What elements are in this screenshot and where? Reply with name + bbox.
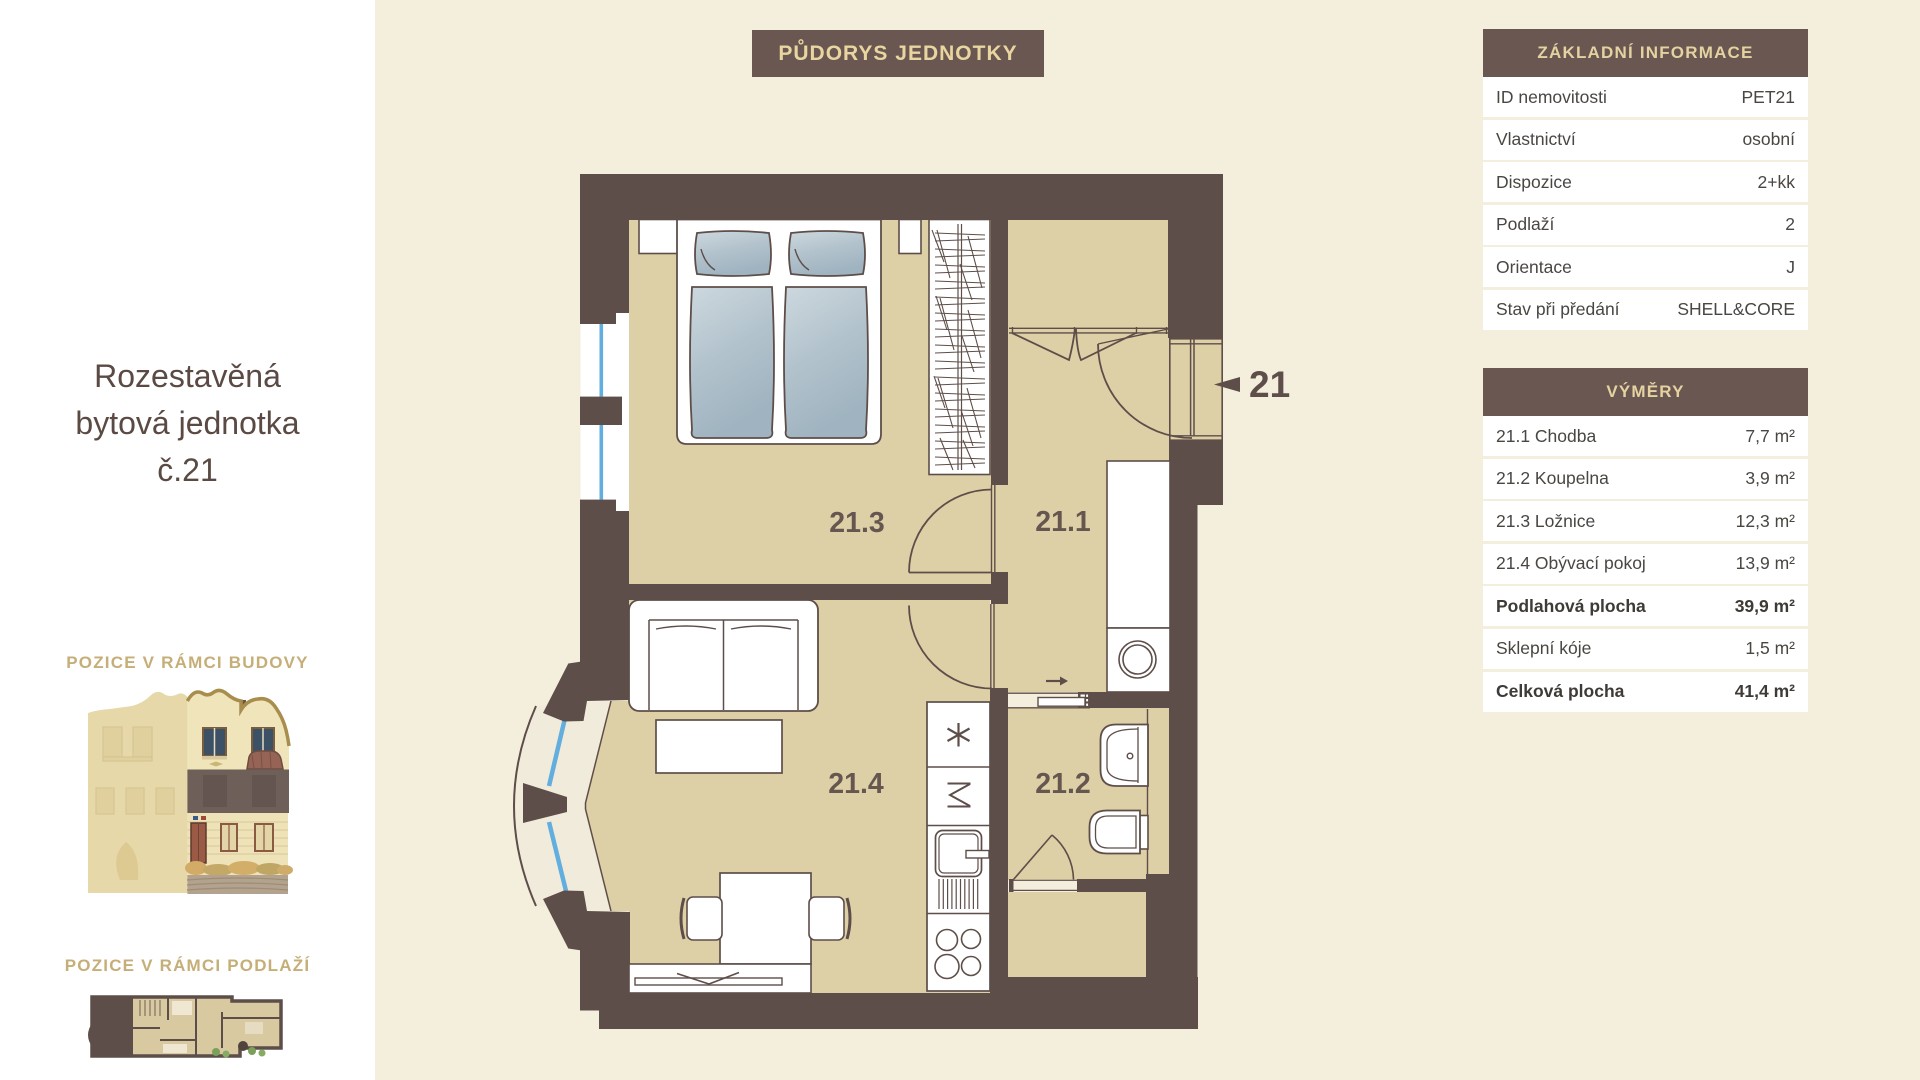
svg-text:21: 21 [1249,364,1290,405]
svg-text:21.1: 21.1 [1035,506,1091,538]
svg-text:21.2: 21.2 [1035,768,1090,800]
svg-text:21.3: 21.3 [829,507,884,539]
svg-text:21.4: 21.4 [828,768,884,800]
